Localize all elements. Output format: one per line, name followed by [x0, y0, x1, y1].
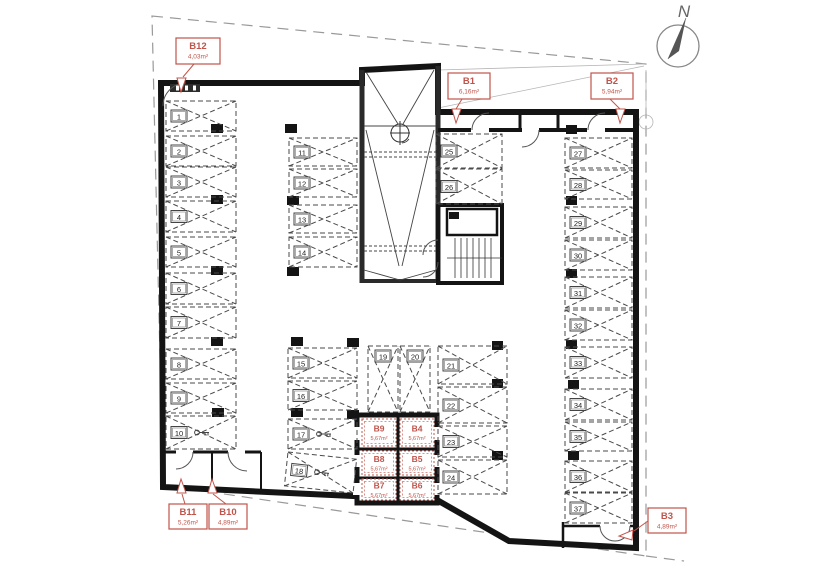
callout-area: 4,89m²: [657, 524, 678, 531]
callout-area: 6,16m²: [459, 89, 480, 96]
storage-room-B6: B65,67m²: [400, 479, 434, 500]
storage-room-area: 5,67m²: [370, 436, 387, 442]
parking-space-number: 26: [445, 183, 453, 192]
parking-space-number: 22: [447, 402, 455, 411]
callout-area: 5,26m²: [178, 520, 199, 527]
callout-id: B3: [661, 511, 673, 522]
parking-space-number: 16: [297, 392, 305, 401]
parking-space-number: 33: [574, 359, 582, 368]
parking-space-number: 4: [177, 213, 181, 222]
callout-id: B11: [180, 507, 198, 518]
parking-space-number: 36: [574, 473, 582, 482]
parking-space-number: 25: [445, 148, 453, 157]
storage-room-area: 5,67m²: [370, 467, 387, 473]
callout-id: B12: [189, 41, 206, 52]
parking-space-number: 27: [574, 150, 582, 159]
parking-space-number: 21: [447, 362, 455, 371]
parking-space-number: 20: [411, 353, 419, 362]
storage-room-id: B6: [412, 481, 423, 491]
callout-area: 5,94m²: [602, 89, 623, 96]
callout-area: 4,03m²: [188, 54, 209, 61]
parking-space-number: 6: [177, 285, 181, 294]
parking-space-number: 2: [177, 148, 181, 157]
parking-space-number: 18: [294, 466, 303, 476]
parking-space-number: 14: [298, 249, 306, 258]
parking-space-number: 10: [175, 429, 183, 438]
storage-room-id: B5: [412, 454, 423, 464]
storage-room-area: 5,67m²: [408, 436, 425, 442]
parking-space-number: 29: [574, 219, 582, 228]
parking-space-number: 30: [574, 252, 582, 261]
parking-space-number: 5: [177, 249, 181, 258]
storage-room-B4: B45,67m²: [400, 419, 434, 446]
parking-space-number: 24: [447, 474, 455, 483]
storage-room-area: 5,67m²: [408, 467, 425, 473]
parking-space-number: 28: [574, 181, 582, 190]
parking-space-number: 37: [574, 505, 582, 514]
parking-space-number: 13: [298, 216, 306, 225]
parking-space-number: 15: [297, 360, 305, 369]
floor-plan-canvas: 1234567891011121314151617181920212223242…: [0, 0, 830, 574]
parking-space-number: 9: [177, 395, 181, 404]
parking-space-number: 1: [177, 113, 181, 122]
storage-room-area: 5,67m²: [370, 493, 387, 499]
parking-space-number: 17: [297, 431, 305, 440]
parking-space-number: 31: [574, 289, 582, 298]
storage-room-id: B4: [412, 424, 423, 434]
parking-space-number: 32: [574, 322, 582, 331]
storage-room-id: B7: [374, 481, 385, 491]
callout-id: B1: [463, 76, 476, 87]
parking-space-number: 12: [298, 180, 306, 189]
parking-space-number: 35: [574, 433, 582, 442]
parking-space-number: 3: [177, 179, 181, 188]
parking-space-number: 11: [298, 149, 306, 158]
storage-room-B8: B85,67m²: [362, 451, 396, 475]
compass-north-label: N: [678, 2, 691, 21]
storage-room-B5: B55,67m²: [400, 451, 434, 475]
callout-id: B2: [606, 76, 618, 87]
storage-room-B7: B75,67m²: [362, 479, 396, 500]
parking-space-number: 7: [177, 319, 181, 328]
storage-room-B9: B95,67m²: [362, 419, 396, 446]
storage-room-id: B8: [374, 454, 385, 464]
callout-area: 4,89m²: [218, 520, 239, 527]
parking-space-number: 23: [447, 438, 455, 447]
storage-room-area: 5,67m²: [408, 493, 425, 499]
storage-room-id: B9: [374, 424, 385, 434]
parking-space-number: 8: [177, 361, 181, 370]
parking-space-number: 34: [574, 401, 582, 410]
garage-floor-plan: 1234567891011121314151617181920212223242…: [0, 0, 830, 574]
parking-space-number: 19: [379, 353, 387, 362]
callout-id: B10: [219, 507, 236, 518]
